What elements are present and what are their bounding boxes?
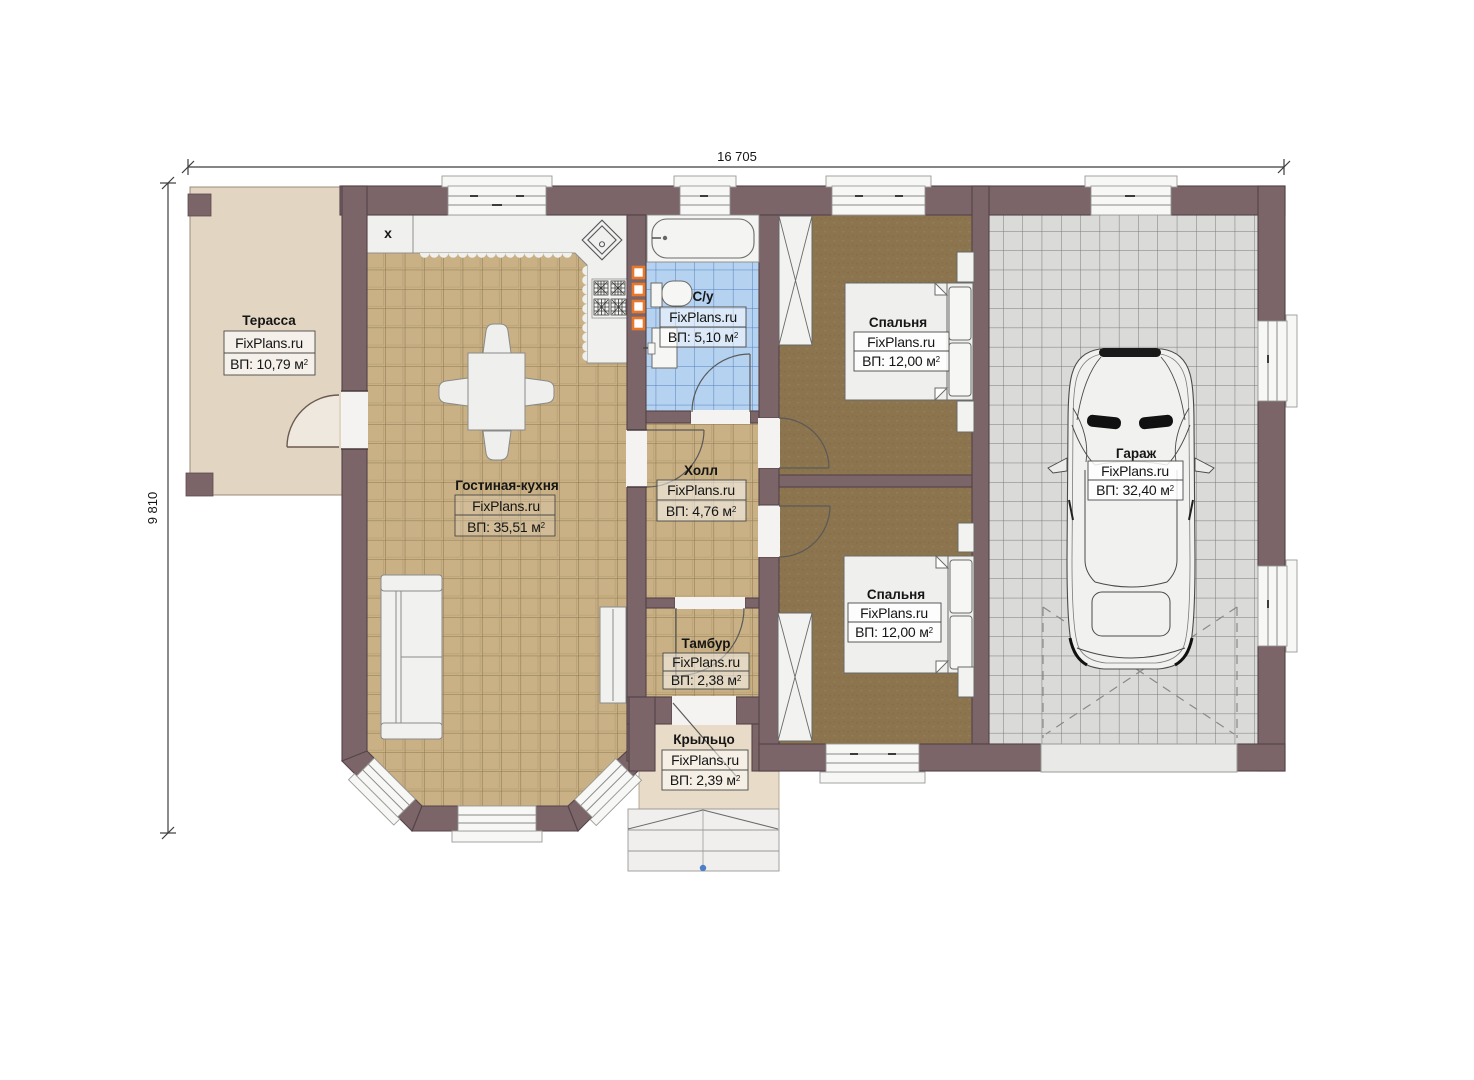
svg-text:Крыльцо: Крыльцо <box>673 732 734 747</box>
svg-text:Гараж: Гараж <box>1116 446 1157 461</box>
svg-text:FixPlans.ru: FixPlans.ru <box>472 498 540 514</box>
svg-text:Спальня: Спальня <box>867 587 925 602</box>
svg-text:FixPlans.ru: FixPlans.ru <box>667 482 735 498</box>
svg-text:FixPlans.ru: FixPlans.ru <box>1101 463 1169 479</box>
svg-text:ВП: 10,79 м2: ВП: 10,79 м2 <box>230 356 309 372</box>
svg-text:ВП: 2,39 м2: ВП: 2,39 м2 <box>670 772 741 788</box>
svg-text:ВП: 2,38 м2: ВП: 2,38 м2 <box>671 672 742 688</box>
svg-text:Гостиная-кухня: Гостиная-кухня <box>455 478 558 493</box>
svg-text:С/у: С/у <box>692 289 714 304</box>
svg-text:Терасса: Терасса <box>242 313 296 328</box>
svg-text:Холл: Холл <box>684 463 718 478</box>
svg-text:ВП: 5,10 м2: ВП: 5,10 м2 <box>668 329 739 345</box>
svg-text:Спальня: Спальня <box>869 315 927 330</box>
svg-text:ВП: 12,00 м2: ВП: 12,00 м2 <box>855 624 934 640</box>
svg-text:ВП: 35,51 м2: ВП: 35,51 м2 <box>467 519 546 535</box>
svg-text:FixPlans.ru: FixPlans.ru <box>669 309 737 325</box>
svg-text:16 705: 16 705 <box>717 149 757 164</box>
svg-text:Тамбур: Тамбур <box>682 636 731 651</box>
svg-text:ВП: 12,00 м2: ВП: 12,00 м2 <box>862 353 941 369</box>
svg-text:FixPlans.ru: FixPlans.ru <box>867 334 935 350</box>
svg-text:ВП: 32,40 м2: ВП: 32,40 м2 <box>1096 482 1175 498</box>
svg-text:FixPlans.ru: FixPlans.ru <box>671 752 739 768</box>
svg-text:FixPlans.ru: FixPlans.ru <box>860 605 928 621</box>
svg-text:x: x <box>384 225 392 241</box>
svg-text:ВП: 4,76 м2: ВП: 4,76 м2 <box>666 503 737 519</box>
svg-text:9 810: 9 810 <box>145 492 160 525</box>
svg-text:FixPlans.ru: FixPlans.ru <box>672 654 740 670</box>
svg-text:FixPlans.ru: FixPlans.ru <box>235 335 303 351</box>
